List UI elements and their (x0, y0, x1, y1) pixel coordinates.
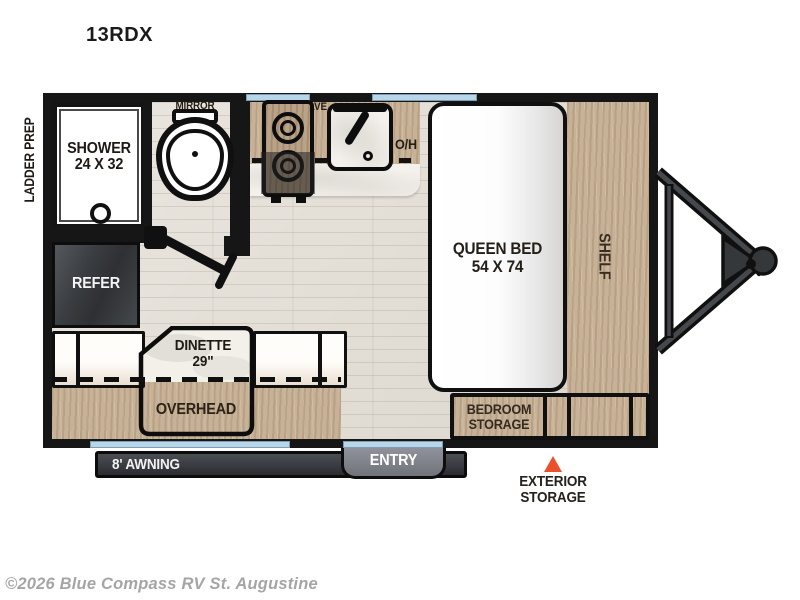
kitchen-sink (327, 103, 393, 171)
floorplan-canvas: 13RDX LADDER PREP SHOWER 24 X 32 MIRROR … (0, 0, 800, 600)
bathroom-wall (43, 226, 149, 243)
overhead-cabinet-label: O/H (392, 137, 421, 152)
exterior-storage-label: EXTERIOR (508, 474, 598, 490)
storage-divider (543, 397, 547, 436)
dinette-overhead-dash-line (52, 377, 341, 382)
faucet-mount (333, 105, 387, 112)
shower-size-label: 24 X 32 (61, 157, 137, 174)
refer-label: REFER (59, 276, 133, 293)
window (90, 441, 290, 448)
shower-stall: SHOWER 24 X 32 (52, 102, 146, 229)
entry-door-tab: ENTRY (341, 448, 446, 479)
cooktop-shadow-overlay (261, 152, 315, 194)
trailer-hitch (655, 160, 795, 364)
queen-bed: QUEEN BED 54 X 74 (428, 102, 567, 392)
copyright-watermark: ©2026 Blue Compass RV St. Augustine (5, 575, 318, 594)
toilet (156, 109, 234, 201)
cooktop-foot (271, 196, 281, 203)
refrigerator: REFER (52, 242, 140, 328)
exterior-storage-triangle-icon (544, 456, 562, 472)
model-title: 13RDX (86, 24, 153, 47)
entry-label: ENTRY (349, 453, 438, 470)
burner-icon (272, 112, 304, 144)
exterior-storage-label2: STORAGE (508, 490, 598, 506)
window (372, 94, 477, 101)
bathroom-wall (143, 102, 152, 229)
bathroom-door (143, 224, 253, 292)
sink-drain (363, 151, 373, 161)
overhead-label: OVERHEAD (153, 402, 239, 419)
ladder-prep-label: LADDER PREP (23, 106, 37, 214)
cooktop (262, 100, 314, 197)
storage-divider (629, 397, 633, 436)
dinette-size-label: 29" (163, 354, 244, 370)
shower-drain (90, 203, 111, 224)
dinette-label: DINETTE (163, 338, 244, 354)
queen-bed-label: QUEEN BED (439, 240, 557, 258)
bedroom-storage: BEDROOM STORAGE (450, 393, 650, 440)
toilet-drain-dot (192, 151, 198, 157)
faucet-icon (344, 110, 371, 146)
queen-bed-size-label: 54 X 74 (439, 258, 557, 276)
cooktop-foot (296, 196, 306, 203)
storage-divider (567, 397, 571, 436)
awning-label: 8' AWNING (112, 457, 180, 473)
bedroom-storage-label: BEDROOM (459, 402, 540, 417)
shelf-label: SHELF (595, 211, 612, 301)
bedroom-storage-label2: STORAGE (459, 417, 540, 432)
window (343, 441, 443, 448)
